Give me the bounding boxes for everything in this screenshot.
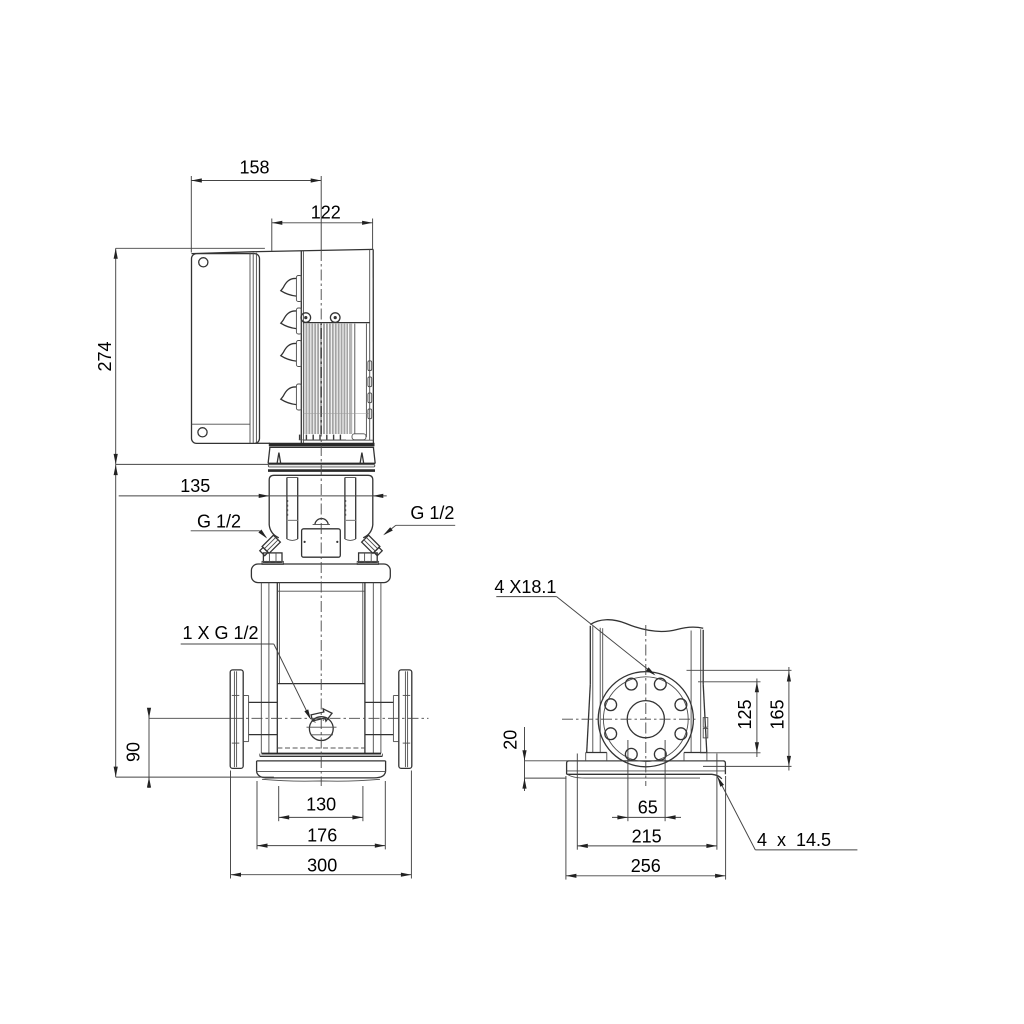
svg-text:256: 256 <box>631 856 661 876</box>
svg-text:4 X18.1: 4 X18.1 <box>494 577 556 597</box>
svg-text:135: 135 <box>180 476 210 496</box>
svg-text:300: 300 <box>307 855 337 875</box>
svg-text:20: 20 <box>500 730 520 750</box>
svg-text:215: 215 <box>632 826 662 846</box>
svg-text:G 1/2: G 1/2 <box>197 511 241 531</box>
svg-text:176: 176 <box>307 826 337 846</box>
svg-text:G 1/2: G 1/2 <box>410 503 454 523</box>
svg-text:165: 165 <box>768 699 788 729</box>
svg-text:274: 274 <box>95 341 115 371</box>
svg-text:90: 90 <box>123 742 143 762</box>
svg-text:4 x 14.5: 4 x 14.5 <box>757 830 831 850</box>
svg-text:122: 122 <box>311 203 341 223</box>
svg-text:130: 130 <box>306 795 336 815</box>
svg-text:1 X G 1/2: 1 X G 1/2 <box>182 623 258 643</box>
svg-text:158: 158 <box>239 158 269 178</box>
svg-text:125: 125 <box>735 699 755 729</box>
svg-text:65: 65 <box>638 798 658 818</box>
